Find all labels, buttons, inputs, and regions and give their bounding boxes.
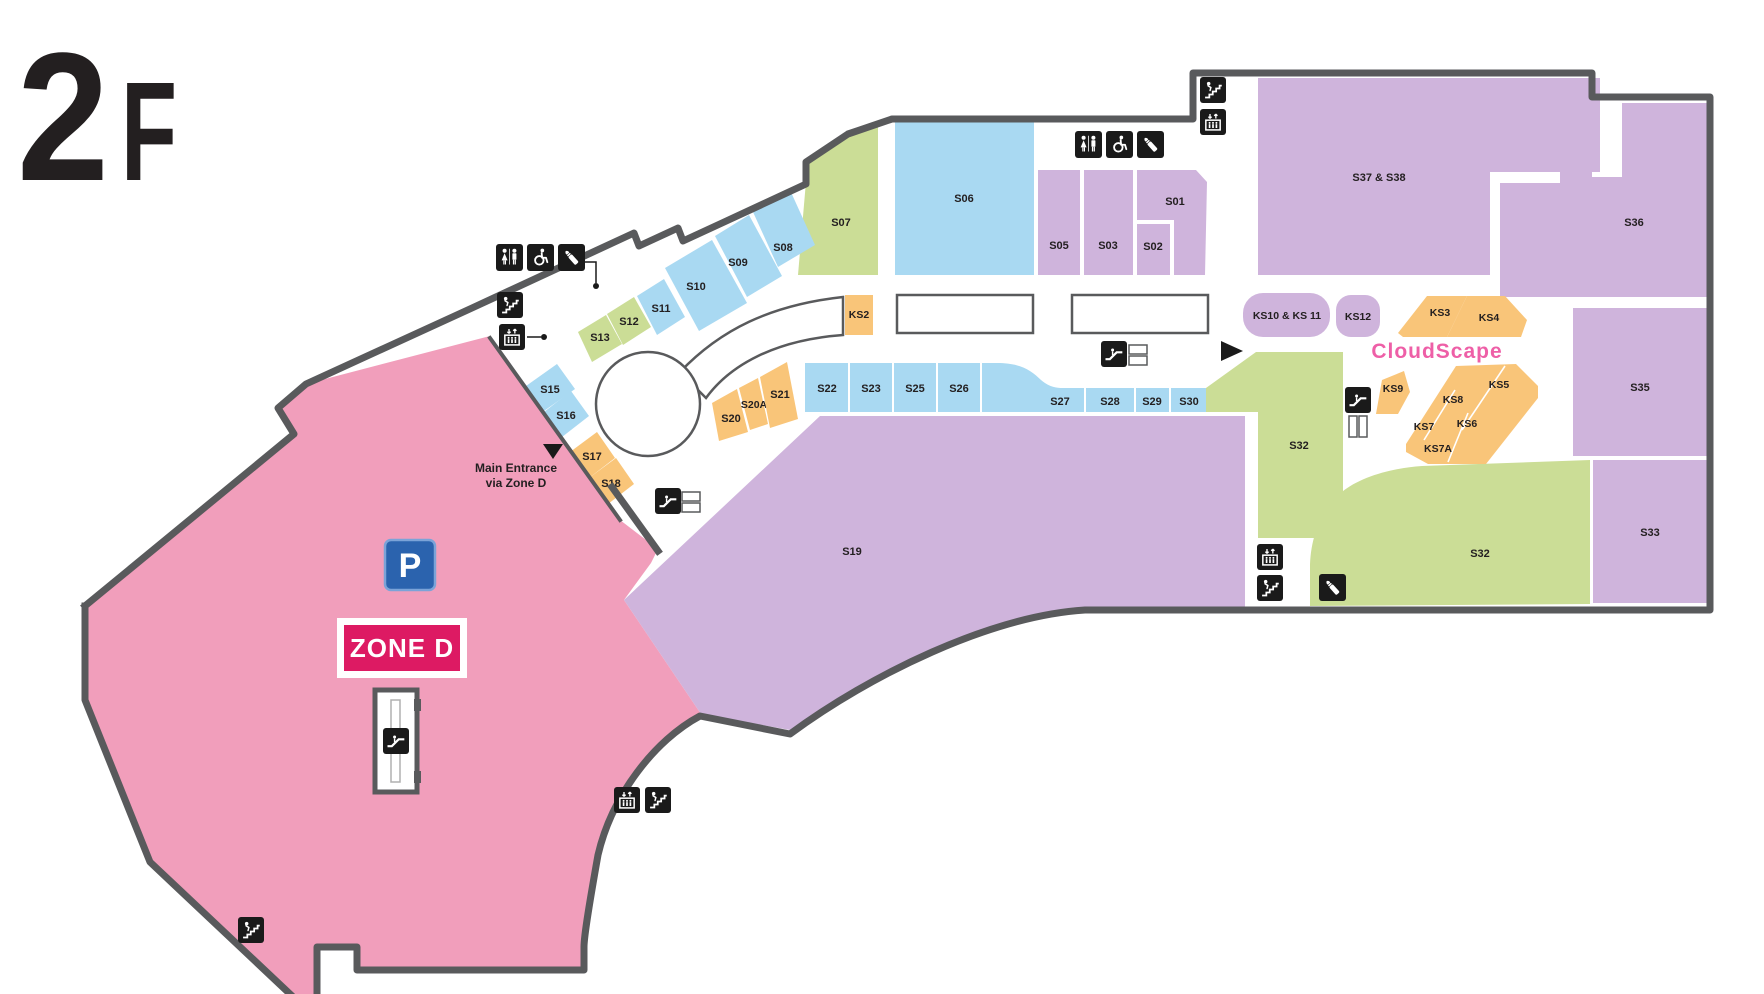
pointer-dot-restrooms: [593, 283, 599, 289]
kiosk-ks2-label: KS2: [849, 309, 870, 321]
store-s26-label: S26: [949, 383, 969, 395]
store-s23-label: S23: [861, 383, 881, 395]
store-s33-label: S33: [1640, 527, 1660, 539]
zone-d-badge: ZONE D: [337, 618, 467, 678]
cloudscape-logo: CloudScape: [1371, 340, 1502, 363]
entrance-note-line1: Main Entrance: [475, 461, 557, 475]
kiosk-ks4-label: KS4: [1479, 312, 1500, 324]
store-s35-label: S35: [1630, 382, 1650, 394]
stairs-icon: [645, 787, 671, 813]
floor-suffix: F: [121, 52, 177, 210]
store-s01-label: S01: [1165, 196, 1185, 208]
store-s05: [1038, 170, 1080, 275]
kiosk-ks7-label: KS7: [1414, 421, 1435, 433]
pointer-dot-elevator: [541, 334, 547, 340]
escalator-icon: [655, 488, 681, 514]
escalator-icon: [1345, 387, 1371, 413]
store-s32-left-label: S32: [1289, 440, 1309, 452]
floor-plan-2f: S19 S37 & S38 S36 S35 S33 S05 S03 S02 S0…: [0, 0, 1764, 994]
store-s13-label: S13: [590, 332, 610, 344]
pointer-line-restrooms: [585, 262, 596, 283]
entrance-note-line2: via Zone D: [486, 476, 547, 490]
store-s20-label: S20: [721, 413, 741, 425]
kiosk-ks10-ks11-label: KS10 & KS 11: [1253, 310, 1321, 322]
nursing-room-icon: [1137, 131, 1164, 158]
escalator-treads: [1129, 345, 1147, 365]
escalator-treads: [1349, 416, 1367, 437]
store-s15-label: S15: [540, 384, 560, 396]
store-s03-label: S03: [1098, 240, 1118, 252]
kiosk-ks7a-label: KS7A: [1424, 443, 1452, 455]
stairs-icon: [238, 917, 264, 943]
kiosk-ks5-label: KS5: [1489, 379, 1510, 391]
stairs-icon: [1257, 575, 1283, 601]
store-s09-label: S09: [728, 257, 748, 269]
escalator-icon: [383, 728, 409, 754]
elevator-icon: [614, 787, 640, 813]
elevator-icon: [499, 324, 525, 350]
store-s03: [1084, 170, 1133, 275]
store-s27-label: S27: [1050, 396, 1070, 408]
parking-sign: P: [385, 540, 435, 590]
store-s36-label: S36: [1624, 217, 1644, 229]
store-s28-label: S28: [1100, 396, 1120, 408]
escalator-treads: [682, 492, 700, 512]
kiosk-ks8-label: KS8: [1443, 394, 1464, 406]
store-s29-label: S29: [1142, 396, 1162, 408]
store-s19-label: S19: [842, 546, 862, 558]
store-s16-label: S16: [556, 410, 576, 422]
store-s25-label: S25: [905, 383, 925, 395]
store-s22-label: S22: [817, 383, 837, 395]
restroom-icon: [496, 244, 523, 271]
zone-d-badge-label: ZONE D: [350, 633, 454, 663]
kiosk-ks6-label: KS6: [1457, 418, 1478, 430]
stairs-icon: [497, 292, 523, 318]
store-s21-label: S21: [770, 389, 790, 401]
direction-arrow: [1221, 341, 1243, 361]
floor-label: 2 F: [17, 14, 177, 219]
store-s37-s38-label: S37 & S38: [1352, 172, 1405, 184]
elevator-icon: [1200, 109, 1226, 135]
atrium-circle: [596, 352, 700, 456]
store-s30-label: S30: [1179, 396, 1199, 408]
store-s11-label: S11: [652, 303, 671, 315]
store-s17-label: S17: [582, 451, 602, 463]
store-s08-label: S08: [773, 242, 793, 254]
store-s12-label: S12: [619, 316, 639, 328]
escalator-icon: [1101, 341, 1127, 367]
store-s02-label: S02: [1143, 241, 1163, 253]
nursing-room-icon: [558, 244, 585, 271]
store-s19: [624, 416, 1245, 730]
nursing-room-icon: [1319, 574, 1346, 601]
store-s10-label: S10: [686, 281, 706, 293]
store-s32-right-label: S32: [1470, 548, 1490, 560]
zone-d-escalator-structure: [375, 690, 421, 792]
wheelchair-accessible-icon: [1106, 131, 1133, 158]
store-s05-label: S05: [1049, 240, 1069, 252]
floor-number: 2: [17, 14, 109, 219]
wheelchair-accessible-icon: [527, 244, 554, 271]
kiosk-ks9-label: KS9: [1383, 383, 1404, 395]
kiosk-ks12-label: KS12: [1345, 311, 1371, 323]
restroom-icon: [1075, 131, 1102, 158]
store-s32-right: [1310, 460, 1590, 606]
kiosk-ks3-label: KS3: [1430, 307, 1451, 319]
stairs-icon: [1200, 77, 1226, 103]
corridor-void-2: [1072, 295, 1208, 333]
store-s07-label: S07: [831, 217, 851, 229]
parking-sign-label: P: [399, 547, 422, 585]
store-s06-label: S06: [954, 193, 974, 205]
elevator-icon: [1257, 544, 1283, 570]
store-s20a-label: S20A: [741, 399, 768, 411]
corridor-void-1: [897, 295, 1033, 333]
